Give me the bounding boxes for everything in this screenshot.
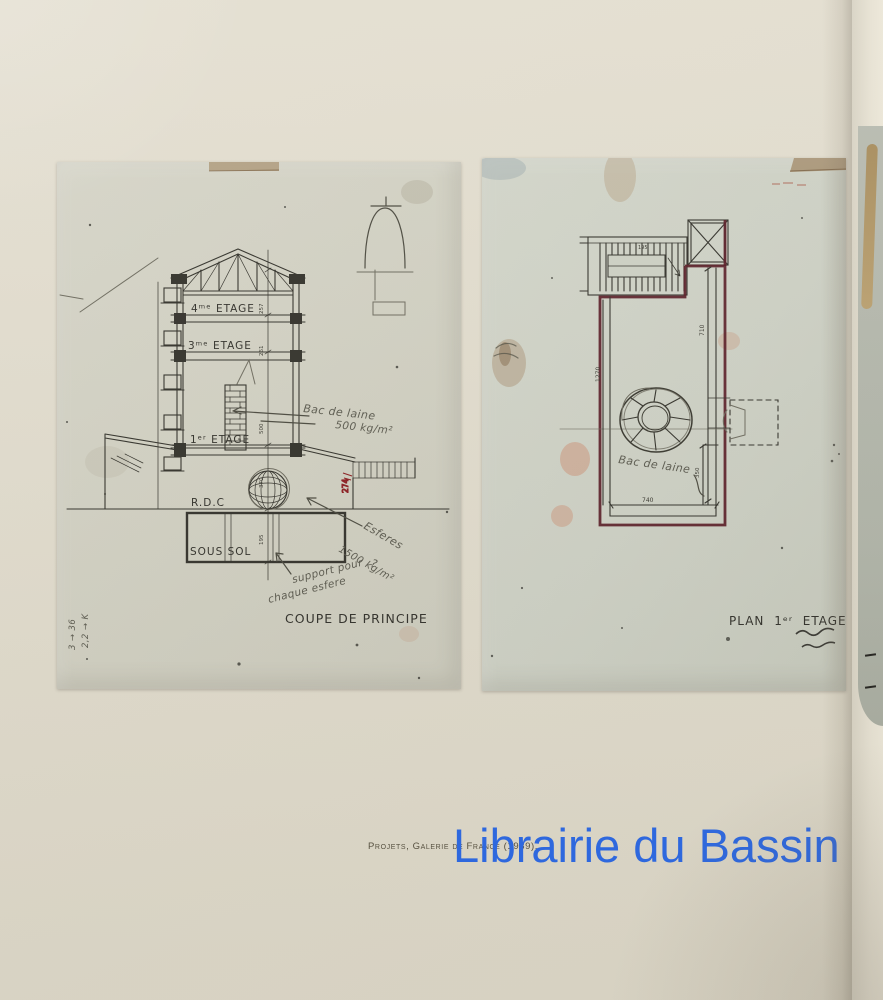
- coupe-drawing: 4ᵐᵉ ETAGE 3ᵐᵉ ETAGE 1ᵉʳ ETAGE R.D.C SOUS…: [57, 162, 461, 689]
- section-structure: [67, 250, 449, 580]
- dim-350: 350: [695, 467, 701, 478]
- note-roof-load-2: 500 kg/m²: [335, 419, 394, 437]
- label-3e: 3ᵐᵉ ETAGE: [188, 340, 252, 352]
- plan-annotations: Bac de laine PLAN 1ᵉʳ ETAGE: [618, 453, 846, 647]
- label-rdc: R.D.C: [191, 497, 225, 509]
- facing-page-tape-mark: [861, 144, 878, 309]
- note-corner-2: 2,2 → K: [81, 613, 91, 648]
- label-sous-sol: SOUS SOL: [190, 546, 251, 558]
- staircase: 195: [580, 237, 687, 295]
- stair-dim: 195: [638, 245, 648, 251]
- room-outline-maroon: [600, 266, 725, 525]
- dim-740: 740: [642, 497, 654, 504]
- plan-drawing: 195: [482, 158, 846, 691]
- plan-stains: [482, 158, 846, 657]
- coupe-plate: 4ᵐᵉ ETAGE 3ᵐᵉ ETAGE 1ᵉʳ ETAGE R.D.C SOUS…: [57, 162, 461, 689]
- bookseller-watermark: Librairie du Bassin: [453, 818, 840, 873]
- roof-truss: [171, 249, 305, 295]
- bell-sketch: [357, 197, 413, 315]
- faded-stamp: [772, 183, 806, 185]
- facing-page-mark: [865, 685, 876, 689]
- plan-title: PLAN 1ᵉʳ ETAGE: [729, 614, 846, 628]
- facing-page-mark: [865, 653, 876, 657]
- sphere-plan: [620, 388, 692, 452]
- note-bac: Bac de laine: [618, 453, 692, 476]
- dim-710: 710: [699, 324, 706, 336]
- facing-page-plate-sliver: [858, 126, 883, 726]
- coupe-title: COUPE DE PRINCIPE: [285, 611, 428, 626]
- dim-257: 257: [259, 303, 265, 314]
- book-page-photo: 4ᵐᵉ ETAGE 3ᵐᵉ ETAGE 1ᵉʳ ETAGE R.D.C SOUS…: [0, 0, 883, 1000]
- note-sphere-load-1: Esferes: [362, 519, 406, 552]
- label-1er: 1ᵉʳ ETAGE: [190, 434, 250, 446]
- sphere-section: [249, 469, 290, 510]
- alcove-dashed: [708, 398, 778, 445]
- dim-195: 195: [259, 534, 265, 545]
- elevator-shaft: [688, 220, 728, 265]
- note-corner-1: 3 → 36: [68, 619, 78, 650]
- title-squiggle: [796, 628, 835, 647]
- label-4e: 4ᵐᵉ ETAGE: [191, 303, 255, 315]
- dim-261: 261: [259, 346, 265, 357]
- coupe-stains: [66, 162, 448, 679]
- plan-plate: 195: [482, 158, 846, 691]
- red-mark-text: 274: [341, 478, 350, 493]
- facing-page-edge: [852, 0, 883, 1000]
- dim-370: 370: [259, 477, 265, 488]
- dim-1270: 1270: [595, 367, 602, 382]
- red-annotation: 274: [341, 473, 352, 493]
- arrow-to-basement: [276, 553, 291, 574]
- dim-500: 500: [259, 423, 265, 434]
